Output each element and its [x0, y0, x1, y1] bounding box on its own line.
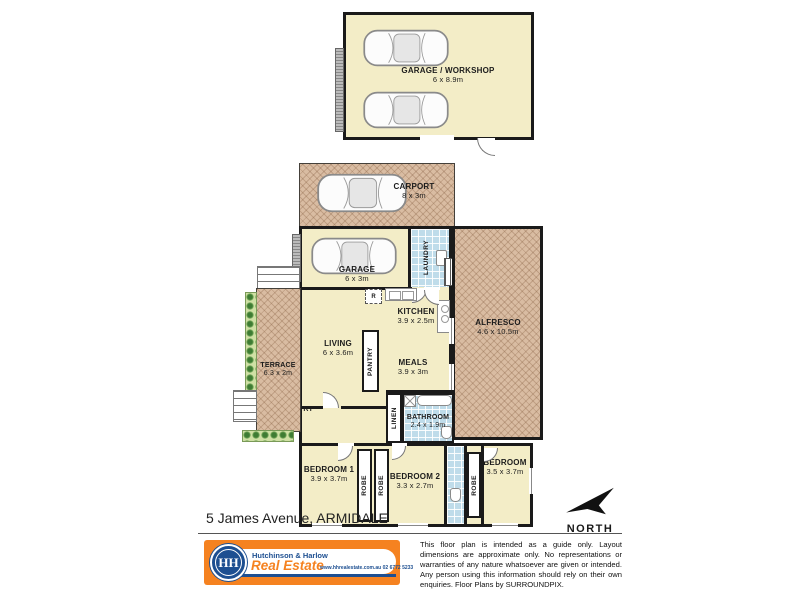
- property-address: 5 James Avenue, ARMIDALE: [206, 510, 388, 526]
- agency-contact: www.hhrealestate.com.au 02 6772 5233: [320, 565, 413, 571]
- stairs: [233, 390, 257, 422]
- bathtub-icon: [417, 395, 452, 406]
- door-arc: [477, 138, 495, 156]
- north-arrow-icon: [563, 486, 617, 516]
- north-indicator: NORTH: [563, 486, 617, 535]
- agency-logo: HH Hutchinson & Harlow Real Estate www.h…: [204, 540, 400, 585]
- stairs: [257, 266, 300, 290]
- window: [398, 523, 428, 528]
- fridge-icon: R: [365, 289, 382, 304]
- label-kitchen: KITCHEN 3.9 x 2.5m: [377, 307, 455, 325]
- label-bedroom2: BEDROOM 2 3.3 x 2.7m: [386, 472, 444, 490]
- north-label: NORTH: [563, 523, 617, 535]
- wc-corridor: [447, 446, 464, 524]
- shower-icon: [404, 395, 416, 407]
- disclaimer-text: This floor plan is intended as a guide o…: [420, 540, 622, 590]
- kitchen-sink-icon: [385, 288, 417, 301]
- window: [449, 318, 454, 344]
- label-bedroom1: BEDROOM 1 3.9 x 3.7m: [300, 465, 358, 483]
- roller-door-icon: [335, 48, 344, 132]
- wall-opening: [420, 135, 454, 141]
- window: [529, 468, 534, 494]
- hh-monogram-icon: HH: [210, 544, 247, 581]
- toilet-icon: [450, 488, 461, 502]
- window: [492, 523, 518, 528]
- wall-segment: [341, 406, 388, 409]
- agency-tagline: Real Estate: [251, 558, 324, 573]
- robe: ROBE: [467, 452, 481, 518]
- garden-strip: [242, 430, 294, 442]
- label-alfresco: ALFRESCO 4.6 x 10.5m: [458, 318, 538, 336]
- label-garage: GARAGE 6 x 3m: [318, 265, 396, 283]
- label-garage-workshop: GARAGE / WORKSHOP 6 x 8.9m: [387, 66, 509, 84]
- label-carport: CARPORT 8 x 3m: [375, 182, 453, 200]
- label-meals: MEALS 3.9 x 3m: [374, 358, 452, 376]
- label-terrace: TERRACE 6.3 x 2m: [247, 362, 309, 378]
- label-bathroom: BATHROOM 2.4 x 1.9m: [399, 414, 457, 430]
- divider-line: [198, 533, 622, 534]
- car-icon: [360, 90, 452, 130]
- window: [449, 364, 454, 390]
- logo-bluebar: [240, 574, 396, 577]
- car-icon: [360, 28, 452, 68]
- room-terrace: [256, 288, 301, 432]
- floor-plan-page: GARAGE / WORKSHOP 6 x 8.9m CARPORT 8 x 3…: [0, 0, 800, 600]
